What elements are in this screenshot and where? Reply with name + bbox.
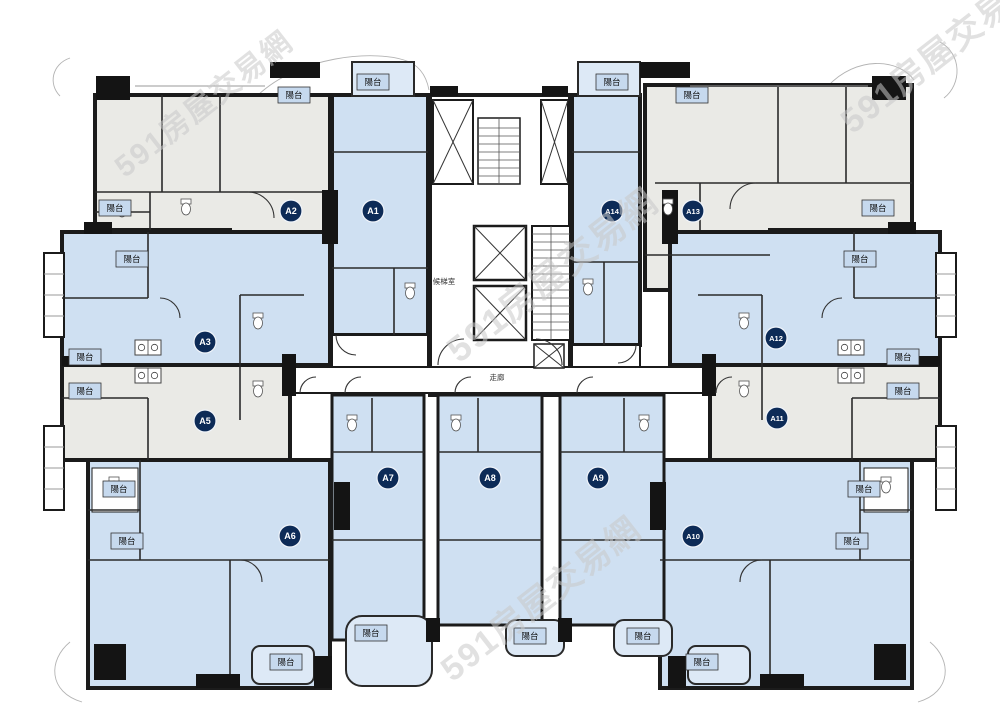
- balcony-label: 陽台: [355, 625, 387, 641]
- unit-badge-a10: A10: [682, 525, 704, 547]
- unit-badge-text: A8: [484, 473, 496, 483]
- unit-badge-text: A9: [592, 473, 604, 483]
- unit-badge-text: A6: [284, 531, 296, 541]
- balcony-label: 陽台: [627, 628, 659, 644]
- balcony-label: 陽台: [69, 383, 101, 399]
- balcony-label-text: 陽台: [693, 657, 710, 667]
- balcony-label: 陽台: [862, 200, 894, 216]
- balcony-label-text: 陽台: [118, 536, 135, 546]
- balcony-label-text: 陽台: [851, 254, 868, 264]
- unit-badge-a13: A13: [682, 200, 704, 222]
- balcony-label: 陽台: [103, 481, 135, 497]
- unit-badge-a11: A11: [766, 407, 788, 429]
- balcony-label-text: 陽台: [683, 90, 700, 100]
- unit-badge-a1: A1: [362, 200, 384, 222]
- balcony-label-text: 陽台: [277, 657, 294, 667]
- balcony-label: 陽台: [278, 87, 310, 103]
- balcony-label: 陽台: [69, 349, 101, 365]
- balcony-label-text: 陽台: [869, 203, 886, 213]
- unit-badge-text: A1: [367, 206, 379, 216]
- hall-left: [332, 335, 428, 367]
- elevator-hall-label: 候梯室: [433, 276, 456, 286]
- balcony-label: 陽台: [596, 74, 628, 90]
- balcony-label-text: 陽台: [106, 203, 123, 213]
- balcony-label: 陽台: [111, 533, 143, 549]
- unit-badge-a7: A7: [377, 467, 399, 489]
- unit-badge-a9: A9: [587, 467, 609, 489]
- balcony-label: 陽台: [887, 383, 919, 399]
- hall-right: [572, 345, 640, 367]
- balcony-label-text: 陽台: [123, 254, 140, 264]
- unit-badge-text: A11: [770, 414, 783, 423]
- watermark-text: 591房屋交易網: [833, 0, 1000, 141]
- unit-badge-text: A3: [199, 337, 211, 347]
- balcony-label-text: 陽台: [894, 352, 911, 362]
- unit-badge-text: A2: [285, 206, 297, 216]
- unit-badge-a2: A2: [280, 200, 302, 222]
- balcony-label-text: 陽台: [110, 484, 127, 494]
- unit-badge-a5: A5: [194, 410, 216, 432]
- corridor-label: 走廊: [490, 372, 505, 382]
- unit-badge-text: A10: [686, 532, 700, 541]
- balcony-label-text: 陽台: [603, 77, 620, 87]
- unit-badge-a12: A12: [765, 327, 787, 349]
- balcony-label: 陽台: [887, 349, 919, 365]
- unit-badge-text: A13: [686, 207, 700, 216]
- balcony-label-text: 陽台: [285, 90, 302, 100]
- unit-badge-text: A5: [199, 416, 211, 426]
- balcony-label-text: 陽台: [634, 631, 651, 641]
- balcony-label: 陽台: [116, 251, 148, 267]
- balcony-label: 陽台: [270, 654, 302, 670]
- unit-a11-area: [710, 365, 940, 460]
- balcony-label: 陽台: [99, 200, 131, 216]
- unit-badge-a6: A6: [279, 525, 301, 547]
- balcony-label: 陽台: [836, 533, 868, 549]
- balcony-label-text: 陽台: [855, 484, 872, 494]
- balcony-label-text: 陽台: [894, 386, 911, 396]
- floor-plan: 陽台陽台陽台陽台陽台陽台陽台陽台陽台陽台陽台陽台陽台陽台陽台陽台陽台陽台陽台陽台…: [0, 0, 1000, 728]
- balcony-label-text: 陽台: [843, 536, 860, 546]
- balcony-label-text: 陽台: [76, 352, 93, 362]
- balcony-label-text: 陽台: [364, 77, 381, 87]
- unit-badge-text: A7: [382, 473, 394, 483]
- balcony-label: 陽台: [848, 481, 880, 497]
- balcony-label-text: 陽台: [76, 386, 93, 396]
- floor-plan-page: 陽台陽台陽台陽台陽台陽台陽台陽台陽台陽台陽台陽台陽台陽台陽台陽台陽台陽台陽台陽台…: [0, 0, 1000, 728]
- unit-badge-a3: A3: [194, 331, 216, 353]
- balcony-label: 陽台: [844, 251, 876, 267]
- balcony-label-text: 陽台: [362, 628, 379, 638]
- balcony-label: 陽台: [686, 654, 718, 670]
- unit-badge-text: A12: [769, 334, 783, 343]
- unit-a5-area: [62, 365, 290, 460]
- balcony-label: 陽台: [357, 74, 389, 90]
- balcony-label: 陽台: [676, 87, 708, 103]
- unit-badge-a8: A8: [479, 467, 501, 489]
